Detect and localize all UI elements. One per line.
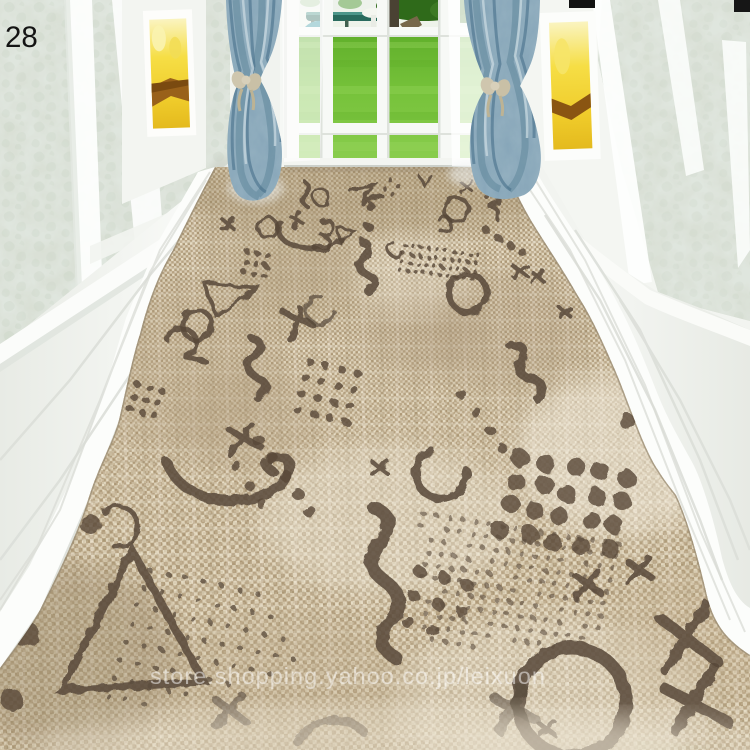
svg-text:28: 28 <box>5 21 38 54</box>
svg-text:store.shopping.yahoo.co.jp/lei: store.shopping.yahoo.co.jp/leixuon <box>150 663 546 689</box>
